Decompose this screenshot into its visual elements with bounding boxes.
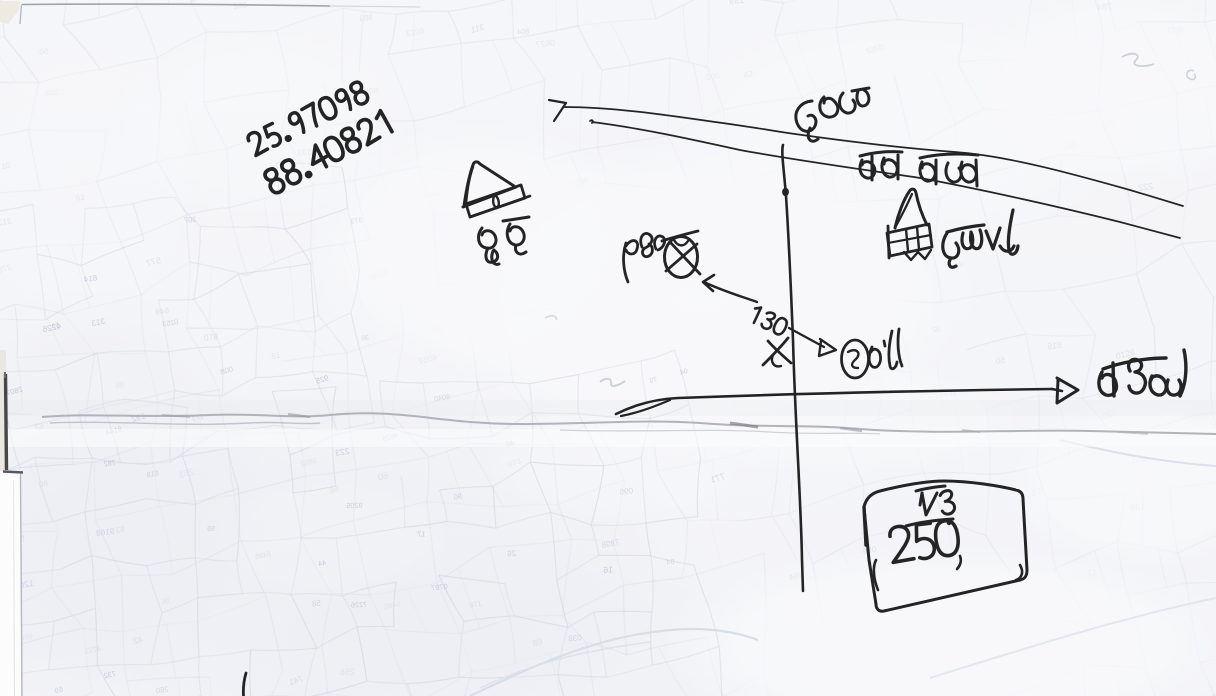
svg-text:17: 17 <box>417 529 425 538</box>
svg-text:619: 619 <box>146 468 160 479</box>
svg-text:44: 44 <box>318 559 327 568</box>
svg-text:16: 16 <box>603 564 614 575</box>
svg-text:7226: 7226 <box>351 600 368 610</box>
svg-text:038: 038 <box>567 633 582 643</box>
svg-text:9205: 9205 <box>346 501 362 510</box>
svg-text:373: 373 <box>350 216 363 226</box>
svg-text:782: 782 <box>103 458 116 468</box>
svg-text:26: 26 <box>506 549 517 559</box>
svg-text:095: 095 <box>619 486 634 497</box>
svg-text:223: 223 <box>334 446 350 458</box>
svg-text:59: 59 <box>207 526 215 533</box>
svg-text:58: 58 <box>311 599 321 609</box>
svg-text:69: 69 <box>54 685 64 696</box>
svg-text:04: 04 <box>666 557 675 567</box>
svg-text:36: 36 <box>360 333 369 342</box>
svg-text:307: 307 <box>183 215 196 225</box>
